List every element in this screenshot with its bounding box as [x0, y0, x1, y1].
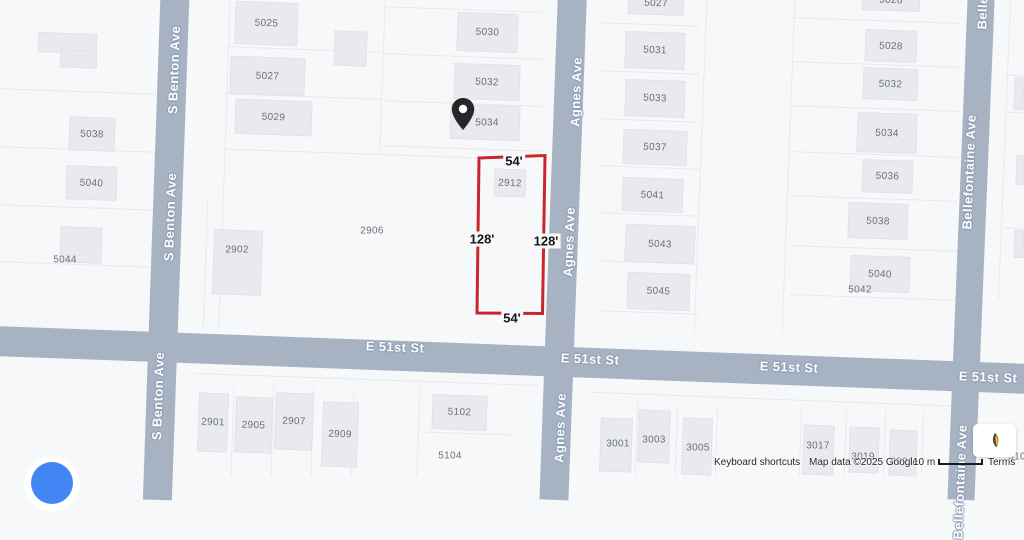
house-number-label: 5104 [438, 451, 461, 462]
parcel-line [0, 204, 156, 210]
building: 5031 [624, 31, 685, 70]
building: 5037 [622, 129, 687, 166]
house-number-label: 5034 [875, 127, 899, 139]
building: 5036 [861, 159, 913, 194]
photo-thumbnail[interactable] [973, 424, 1016, 457]
parcel-line [600, 22, 700, 26]
parcel-line [420, 431, 516, 435]
leaf-icon [987, 430, 1003, 452]
parcel-line [195, 373, 540, 386]
house-number-label: 5033 [643, 93, 667, 105]
parcel-line [1006, 112, 1024, 114]
street-name-label-agnes: Agnes Ave [567, 57, 584, 127]
house-number-label: 5025 [255, 18, 279, 30]
house-number-label: 3017 [806, 441, 829, 452]
parcel-line [790, 294, 958, 301]
building: 5032 [453, 63, 520, 101]
building: 2912 [494, 168, 527, 197]
street-name-label-benton: S Benton Ave [165, 26, 183, 115]
house-number-label: 3001 [606, 439, 629, 450]
parcel-line [203, 200, 208, 328]
building: 5033 [624, 79, 685, 118]
house-number-label: 5102 [448, 407, 472, 419]
parcel-line [379, 0, 385, 152]
building: 5034 [856, 112, 917, 154]
building: 5025 [234, 1, 298, 46]
dimension-label-right: 128' [532, 234, 561, 249]
house-number-label: 5030 [476, 27, 500, 39]
location-pin-icon[interactable] [451, 98, 475, 130]
parcel-line [998, 0, 1011, 300]
map-data-attribution: Map data ©2025 Google [809, 457, 918, 468]
house-number-label: 5038 [80, 128, 104, 140]
building [333, 30, 367, 66]
house-number-label: 5041 [641, 189, 665, 201]
street-name-label-benton: S Benton Ave [149, 352, 167, 441]
parcel-line [600, 212, 700, 216]
keyboard-shortcuts-link[interactable]: Keyboard shortcuts [714, 457, 800, 468]
house-number-label: 5026 [879, 0, 903, 6]
google-logo-g [31, 462, 73, 504]
house-number-label: 5037 [643, 142, 667, 154]
building [212, 229, 263, 296]
house-number-label: 5045 [647, 286, 671, 298]
building: 5028 [864, 29, 917, 63]
house-number-label: 3003 [642, 435, 665, 446]
building [1014, 230, 1024, 258]
street-name-label-e51: E 51st St [560, 350, 619, 367]
parcel-line [384, 53, 542, 60]
house-number-label: 5040 [868, 268, 892, 280]
street-name-label-e51: E 51st St [759, 358, 818, 375]
house-number-label: 5042 [848, 285, 871, 296]
building: 5102 [431, 394, 487, 431]
street-name-label-agnes: Agnes Ave [551, 393, 568, 463]
building: 5041 [621, 177, 683, 213]
street-name-label-e51: E 51st St [365, 338, 424, 355]
house-number-label: 5032 [879, 78, 903, 90]
house-number-label: 5043 [648, 238, 672, 250]
building: 2901 [197, 392, 229, 452]
building [1013, 77, 1024, 110]
street-name-label-bellefontaine: Bellefontaine Ave [950, 424, 970, 539]
house-number-label: 5044 [53, 255, 76, 266]
building [888, 430, 918, 477]
house-number-label: 5029 [262, 112, 286, 124]
dimension-label-bottom: 54' [501, 311, 523, 326]
parcel-line [600, 118, 700, 122]
dimension-label-left: 128' [468, 232, 497, 247]
building: 5038 [847, 202, 908, 240]
building: 5030 [456, 12, 518, 53]
building: 5027 [229, 56, 305, 97]
google-logo[interactable] [24, 456, 80, 512]
scale-bar[interactable] [938, 459, 983, 465]
map-canvas[interactable]: 54' 128' 128' 54' Keyboard shortcuts Map… [0, 0, 1024, 475]
house-number-label: 5027 [256, 70, 280, 82]
building: 2909 [321, 401, 359, 467]
building [60, 49, 98, 68]
street-name-label-e51: E 51st St [958, 368, 1017, 385]
street-name-label-benton: S Benton Ave [161, 173, 179, 262]
building: 5045 [626, 272, 690, 311]
house-number-label: 5027 [644, 0, 668, 9]
building: 5040 [65, 165, 117, 201]
parcel-line [224, 149, 480, 159]
house-number-label: 2901 [201, 417, 225, 429]
street-name-label-agnes: Agnes Ave [560, 207, 577, 277]
parcel-line [790, 105, 958, 112]
house-number-label: 3005 [686, 443, 709, 454]
house-number-label: 5031 [643, 45, 667, 57]
house-number-label: 2906 [360, 226, 383, 237]
parcel-line [0, 88, 156, 94]
parcel-line [790, 17, 958, 24]
building: 5038 [68, 116, 115, 152]
house-number-label: 2905 [242, 419, 266, 431]
house-number-label: 5040 [80, 177, 104, 189]
parcel-line [694, 0, 708, 333]
building: 5032 [862, 67, 918, 101]
dimension-label-top: 54' [503, 154, 525, 169]
scale-text: 10 m [913, 457, 935, 468]
building: 2905 [234, 396, 273, 453]
house-number-label: 2909 [328, 429, 352, 441]
building: 5029 [234, 99, 312, 137]
parcel-line [384, 145, 542, 152]
parcel-line [790, 195, 958, 202]
parcel-line [790, 245, 958, 252]
terms-link[interactable]: Terms [988, 457, 1015, 468]
parcel-line [600, 70, 700, 74]
building: 5026 [862, 0, 921, 12]
house-number-label: 2902 [225, 245, 248, 256]
building [1015, 155, 1024, 185]
house-number-label: 5032 [475, 76, 499, 88]
parcel-line [782, 0, 796, 333]
house-number-label: 5028 [879, 40, 903, 52]
house-number-label: 5038 [866, 215, 890, 227]
building: 5027 [628, 0, 685, 16]
house-number-label: 5036 [876, 171, 900, 183]
building: 2907 [274, 392, 314, 450]
building: 5043 [624, 224, 695, 264]
parcel-line [588, 392, 973, 408]
parcel-line [675, 404, 678, 475]
house-number-label: 2907 [282, 416, 306, 428]
house-number-label: 2912 [498, 177, 522, 189]
house-number-label: 5034 [475, 118, 498, 129]
